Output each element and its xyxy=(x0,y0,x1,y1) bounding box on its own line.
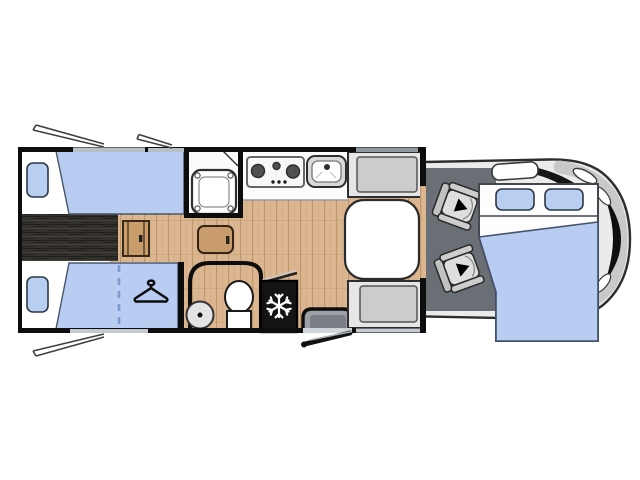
toilet xyxy=(225,281,253,313)
entry-door-open xyxy=(301,332,352,348)
window-flap-icon xyxy=(33,125,104,147)
sink xyxy=(307,156,346,187)
dinette-bench-bottom xyxy=(348,281,423,328)
fridge xyxy=(261,281,297,332)
burner-icon xyxy=(287,165,300,178)
rear-cabinet xyxy=(123,221,149,256)
shower xyxy=(188,150,238,216)
pass-through-floor xyxy=(420,186,426,278)
rear-bed-bottom-mattress xyxy=(56,263,178,329)
front-bed-pillow-right xyxy=(545,189,583,210)
front-bed-pillow-left xyxy=(496,189,534,210)
floorplan-drawing xyxy=(0,0,640,480)
dinette-table xyxy=(345,200,419,279)
rear-walkway xyxy=(21,214,118,261)
front-bed xyxy=(479,184,598,341)
burner-icon xyxy=(273,162,280,169)
window-flap-icon xyxy=(33,334,104,356)
roof-hatch-icon xyxy=(491,161,538,180)
rear-bed-bottom-pillow xyxy=(27,277,48,312)
habitation-area xyxy=(18,147,426,333)
dinette xyxy=(345,152,423,328)
window-flap-icon xyxy=(137,135,172,149)
rear-bed-top-pillow xyxy=(27,163,48,197)
kitchen xyxy=(243,150,348,200)
floorplan-canvas xyxy=(0,0,640,480)
dinette-bench-top xyxy=(348,152,423,197)
burner-icon xyxy=(252,165,265,178)
faucet-icon xyxy=(324,164,330,170)
stove xyxy=(247,157,304,187)
rear-bed-top-mattress xyxy=(56,151,184,214)
front-bed-mattress xyxy=(479,222,598,341)
